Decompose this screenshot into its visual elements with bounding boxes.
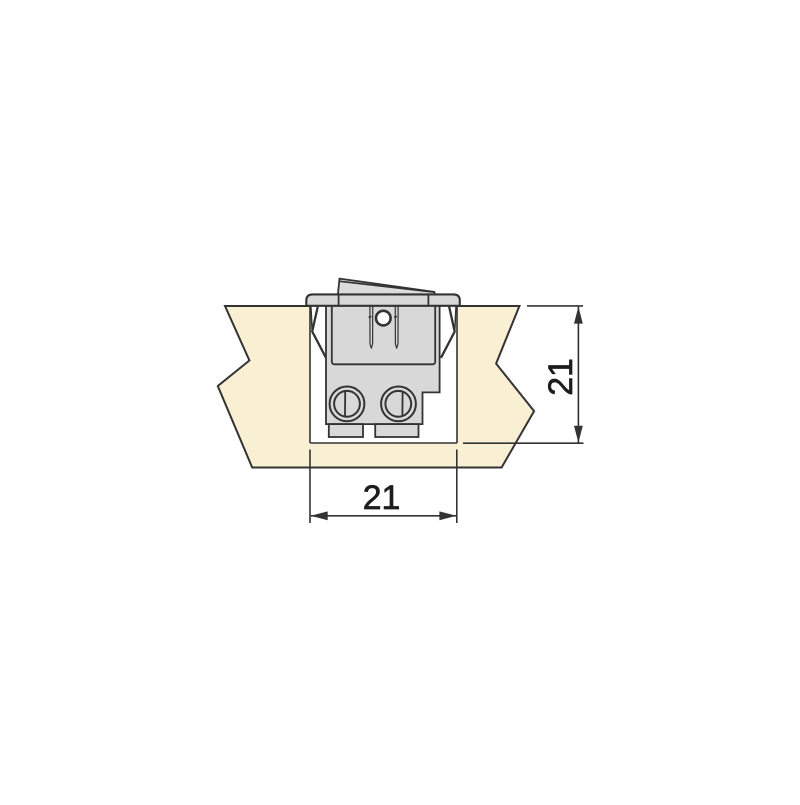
svg-text:21: 21 xyxy=(542,358,580,396)
svg-text:21: 21 xyxy=(363,479,401,517)
